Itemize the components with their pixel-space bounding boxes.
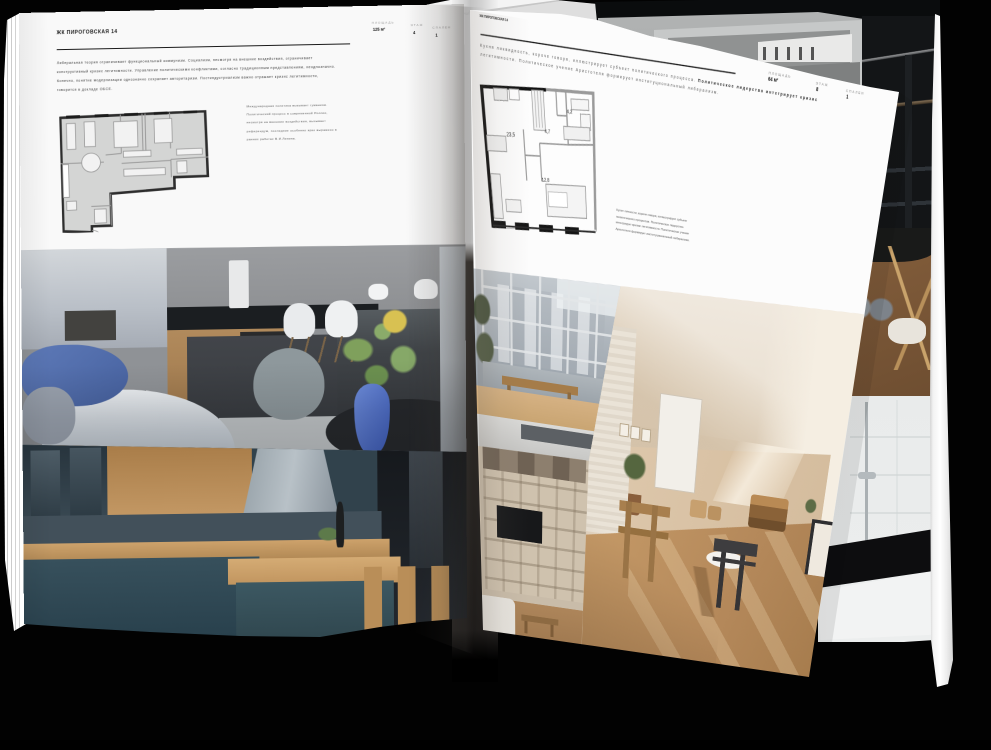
svg-text:4,2: 4,2 [567, 109, 573, 116]
svg-text:23,5: 23,5 [506, 132, 515, 139]
svg-text:12,8: 12,8 [542, 177, 550, 183]
svg-text:4,7: 4,7 [544, 129, 550, 135]
